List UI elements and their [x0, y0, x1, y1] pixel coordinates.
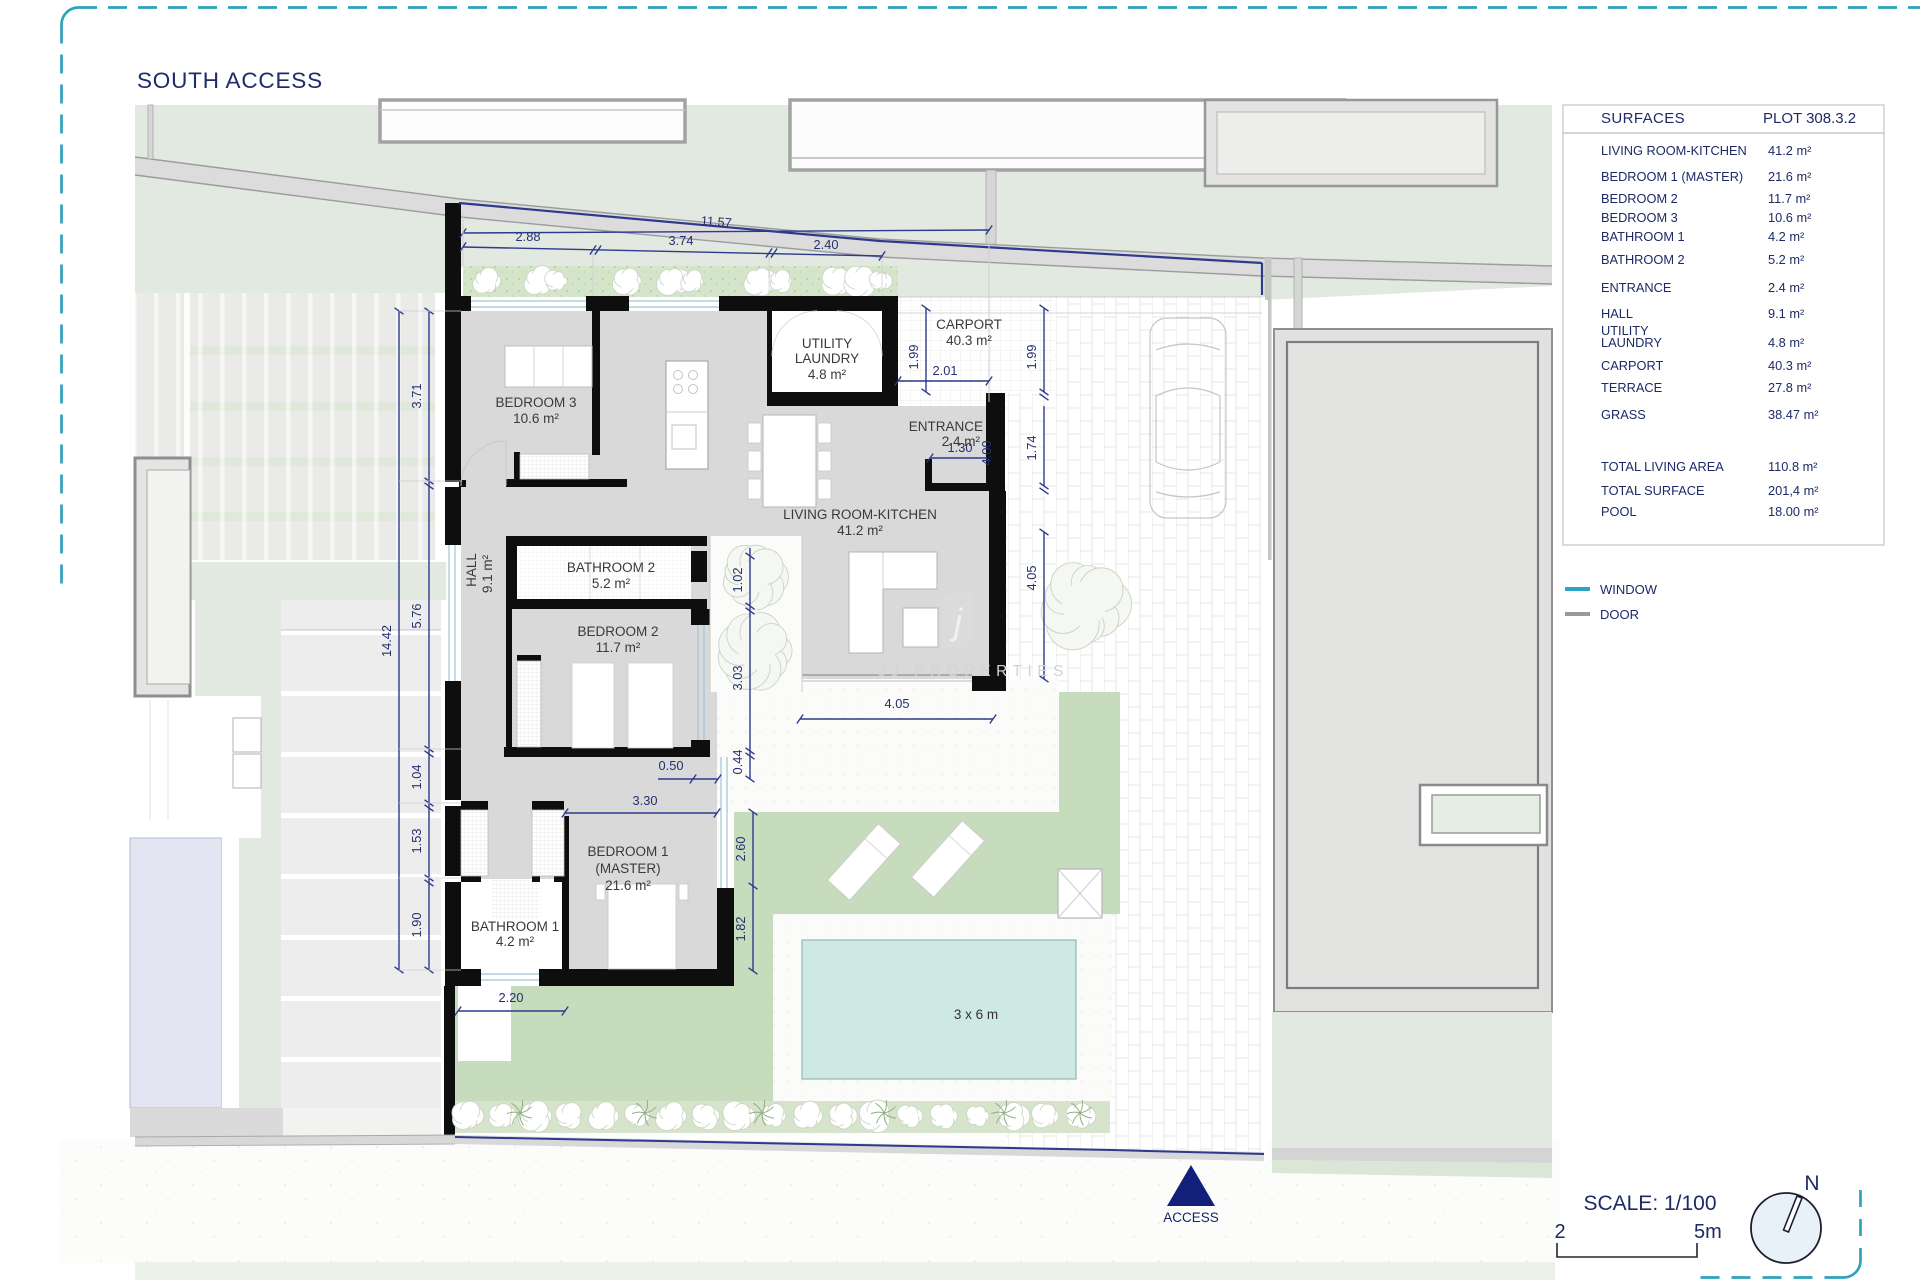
svg-text:4.00: 4.00 [979, 441, 994, 466]
svg-text:DOOR: DOOR [1600, 607, 1639, 622]
svg-text:LAUNDRY: LAUNDRY [795, 351, 859, 366]
svg-text:27.8 m²: 27.8 m² [1768, 380, 1812, 395]
svg-text:BATHROOM 1: BATHROOM 1 [1601, 229, 1685, 244]
svg-text:SURFACES: SURFACES [1601, 110, 1685, 127]
svg-text:BEDROOM 2: BEDROOM 2 [577, 624, 658, 639]
svg-text:38.47 m²: 38.47 m² [1768, 407, 1819, 422]
svg-text:BEDROOM 3: BEDROOM 3 [495, 395, 576, 410]
svg-text:LIVING ROOM-KITCHEN: LIVING ROOM-KITCHEN [783, 507, 937, 522]
svg-text:HALL: HALL [464, 553, 479, 587]
svg-text:2.20: 2.20 [499, 990, 524, 1005]
svg-text:3.03: 3.03 [730, 666, 745, 691]
svg-text:4.05: 4.05 [1024, 566, 1039, 591]
svg-text:40.3 m²: 40.3 m² [1768, 358, 1812, 373]
svg-text:1.90: 1.90 [409, 913, 424, 938]
svg-text:2: 2 [1554, 1221, 1565, 1243]
svg-text:110.8 m²: 110.8 m² [1768, 459, 1818, 474]
svg-text:3.71: 3.71 [409, 384, 424, 409]
svg-text:0.50: 0.50 [659, 758, 684, 773]
svg-text:0.44: 0.44 [730, 750, 745, 775]
svg-text:TERRACE: TERRACE [1601, 380, 1662, 395]
svg-text:9.1 m²: 9.1 m² [480, 554, 495, 593]
svg-text:ENTRANCE: ENTRANCE [909, 419, 983, 434]
svg-text:BATHROOM 2: BATHROOM 2 [567, 560, 655, 575]
svg-text:BATHROOM 1: BATHROOM 1 [471, 919, 559, 934]
svg-text:201,4 m²: 201,4 m² [1768, 483, 1819, 498]
svg-text:ACCESS: ACCESS [1163, 1210, 1219, 1225]
svg-text:BATHROOM 2: BATHROOM 2 [1601, 252, 1685, 267]
svg-text:PLOT 308.3.2: PLOT 308.3.2 [1763, 110, 1856, 127]
svg-text:11.57: 11.57 [700, 213, 732, 230]
svg-text:CARPORT: CARPORT [936, 317, 1002, 332]
svg-text:BEDROOM 2: BEDROOM 2 [1601, 191, 1678, 206]
svg-text:2.88: 2.88 [516, 229, 541, 244]
svg-text:4.05: 4.05 [885, 696, 910, 711]
svg-text:ENTRANCE: ENTRANCE [1601, 280, 1671, 295]
svg-text:SCALE: 1/100: SCALE: 1/100 [1583, 1192, 1716, 1215]
svg-text:BEDROOM 1: BEDROOM 1 [587, 844, 668, 859]
svg-text:3 x 6 m: 3 x 6 m [954, 1007, 998, 1022]
svg-text:11.7 m²: 11.7 m² [596, 640, 641, 655]
svg-text:WINDOW: WINDOW [1600, 582, 1658, 597]
svg-text:14.42: 14.42 [379, 625, 394, 657]
svg-text:1.74: 1.74 [1024, 436, 1039, 461]
svg-text:1.82: 1.82 [733, 917, 748, 942]
svg-text:41.2 m²: 41.2 m² [1768, 143, 1812, 158]
svg-text:1.99: 1.99 [906, 345, 921, 370]
svg-text:1.53: 1.53 [409, 829, 424, 854]
svg-text:2.01: 2.01 [933, 363, 958, 378]
svg-text:SOUTH ACCESS: SOUTH ACCESS [137, 68, 323, 93]
svg-text:TOTAL LIVING AREA: TOTAL LIVING AREA [1601, 459, 1724, 474]
svg-text:N: N [1804, 1172, 1819, 1195]
svg-text:3.74: 3.74 [669, 233, 694, 248]
svg-text:18.00 m²: 18.00 m² [1768, 504, 1819, 519]
svg-text:HALL: HALL [1601, 306, 1633, 321]
svg-text:10.6 m²: 10.6 m² [513, 411, 559, 426]
svg-text:CARPORT: CARPORT [1601, 358, 1664, 373]
svg-text:40.3 m²: 40.3 m² [946, 333, 992, 348]
svg-text:LAUNDRY: LAUNDRY [1601, 335, 1662, 350]
svg-text:4.8 m²: 4.8 m² [808, 367, 847, 382]
svg-text:LIVING ROOM-KITCHEN: LIVING ROOM-KITCHEN [1601, 143, 1747, 158]
svg-text:BEDROOM 3: BEDROOM 3 [1601, 210, 1678, 225]
svg-text:5.2 m²: 5.2 m² [1768, 252, 1805, 267]
svg-text:4.2 m²: 4.2 m² [1768, 229, 1805, 244]
svg-text:4.2 m²: 4.2 m² [496, 934, 535, 949]
svg-text:21.6 m²: 21.6 m² [1768, 169, 1812, 184]
svg-text:3.30: 3.30 [633, 793, 658, 808]
svg-text:2.60: 2.60 [733, 837, 748, 862]
svg-text:1.99: 1.99 [1024, 345, 1039, 370]
svg-text:5.76: 5.76 [409, 604, 424, 629]
svg-text:9.1 m²: 9.1 m² [1768, 306, 1805, 321]
svg-text:5.2 m²: 5.2 m² [592, 576, 631, 591]
svg-text:10.6 m²: 10.6 m² [1768, 210, 1812, 225]
svg-text:BEDROOM 1 (MASTER): BEDROOM 1 (MASTER) [1601, 169, 1743, 184]
svg-text:POOL: POOL [1601, 504, 1637, 519]
svg-text:1.04: 1.04 [409, 765, 424, 790]
svg-text:5m: 5m [1694, 1221, 1722, 1243]
svg-text:41.2 m²: 41.2 m² [837, 523, 883, 538]
svg-text:2.4 m²: 2.4 m² [942, 434, 981, 449]
svg-text:TOTAL SURFACE: TOTAL SURFACE [1601, 483, 1705, 498]
svg-text:2.4 m²: 2.4 m² [1768, 280, 1805, 295]
svg-text:2.40: 2.40 [814, 237, 839, 252]
svg-text:11.7 m²: 11.7 m² [1768, 191, 1811, 206]
svg-text:(MASTER): (MASTER) [595, 861, 660, 876]
svg-text:21.6 m²: 21.6 m² [605, 878, 651, 893]
svg-text:UTILITY: UTILITY [802, 336, 852, 351]
svg-text:1.02: 1.02 [730, 568, 745, 593]
svg-text:JJ PROPERTIES: JJ PROPERTIES [878, 663, 1069, 680]
svg-text:4.8 m²: 4.8 m² [1768, 335, 1805, 350]
svg-text:GRASS: GRASS [1601, 407, 1646, 422]
